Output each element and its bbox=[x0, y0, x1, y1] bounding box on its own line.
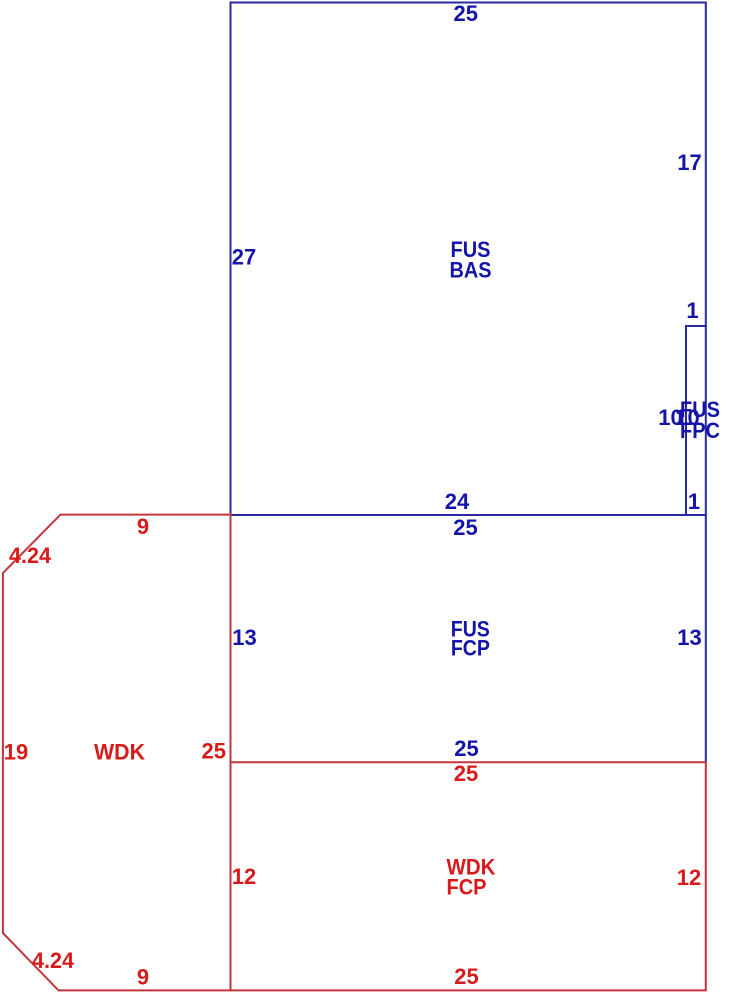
svg-text:12: 12 bbox=[677, 865, 701, 890]
svg-text:9: 9 bbox=[137, 514, 149, 539]
svg-text:WDK: WDK bbox=[94, 740, 145, 765]
svg-text:25: 25 bbox=[454, 964, 478, 989]
svg-text:FCP: FCP bbox=[451, 636, 490, 661]
svg-text:4.24: 4.24 bbox=[9, 543, 52, 568]
svg-text:25: 25 bbox=[202, 739, 226, 764]
svg-text:17: 17 bbox=[677, 150, 701, 175]
svg-text:27: 27 bbox=[232, 245, 256, 270]
svg-text:9: 9 bbox=[137, 965, 149, 990]
svg-text:FPC: FPC bbox=[680, 418, 720, 443]
svg-text:1: 1 bbox=[686, 298, 698, 323]
svg-text:4.24: 4.24 bbox=[32, 948, 75, 973]
svg-text:25: 25 bbox=[453, 515, 477, 540]
svg-text:25: 25 bbox=[454, 761, 478, 786]
svg-text:BAS: BAS bbox=[450, 258, 492, 283]
svg-text:25: 25 bbox=[454, 736, 478, 761]
svg-text:19: 19 bbox=[4, 740, 28, 765]
svg-text:25: 25 bbox=[453, 1, 477, 26]
svg-text:24: 24 bbox=[445, 489, 470, 514]
svg-text:12: 12 bbox=[232, 864, 256, 889]
svg-text:FCP: FCP bbox=[447, 875, 487, 900]
svg-text:13: 13 bbox=[232, 625, 256, 650]
svg-text:13: 13 bbox=[677, 625, 701, 650]
svg-text:1: 1 bbox=[688, 489, 700, 514]
